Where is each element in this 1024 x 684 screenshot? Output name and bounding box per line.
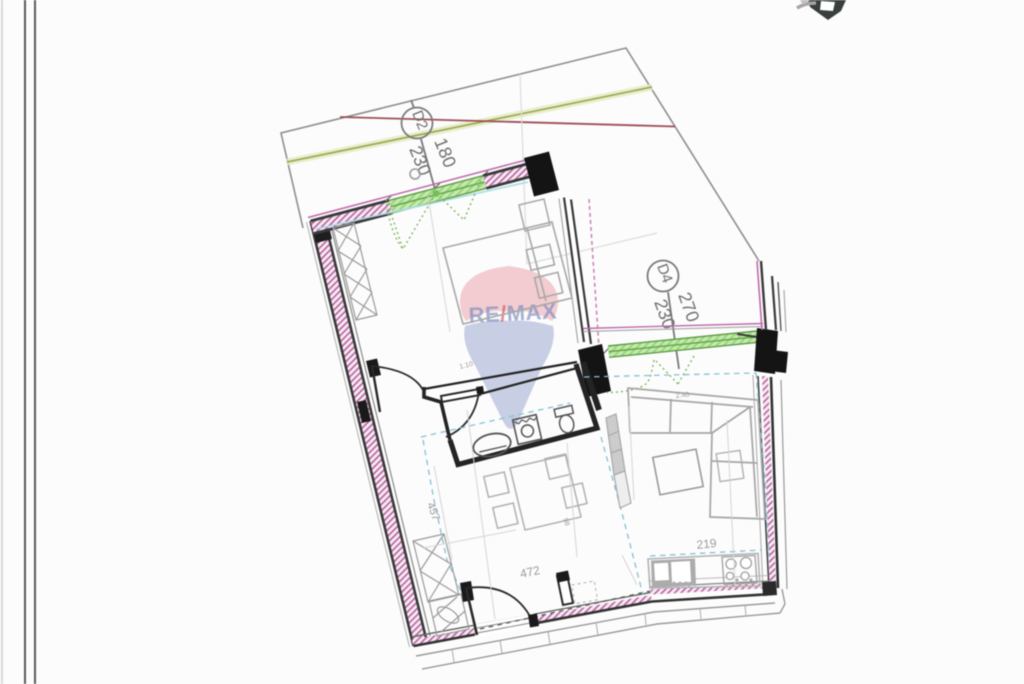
svg-text:2.40: 2.40 — [675, 392, 689, 400]
svg-text:219: 219 — [696, 536, 718, 552]
svg-text:RE/MAX: RE/MAX — [468, 298, 558, 328]
